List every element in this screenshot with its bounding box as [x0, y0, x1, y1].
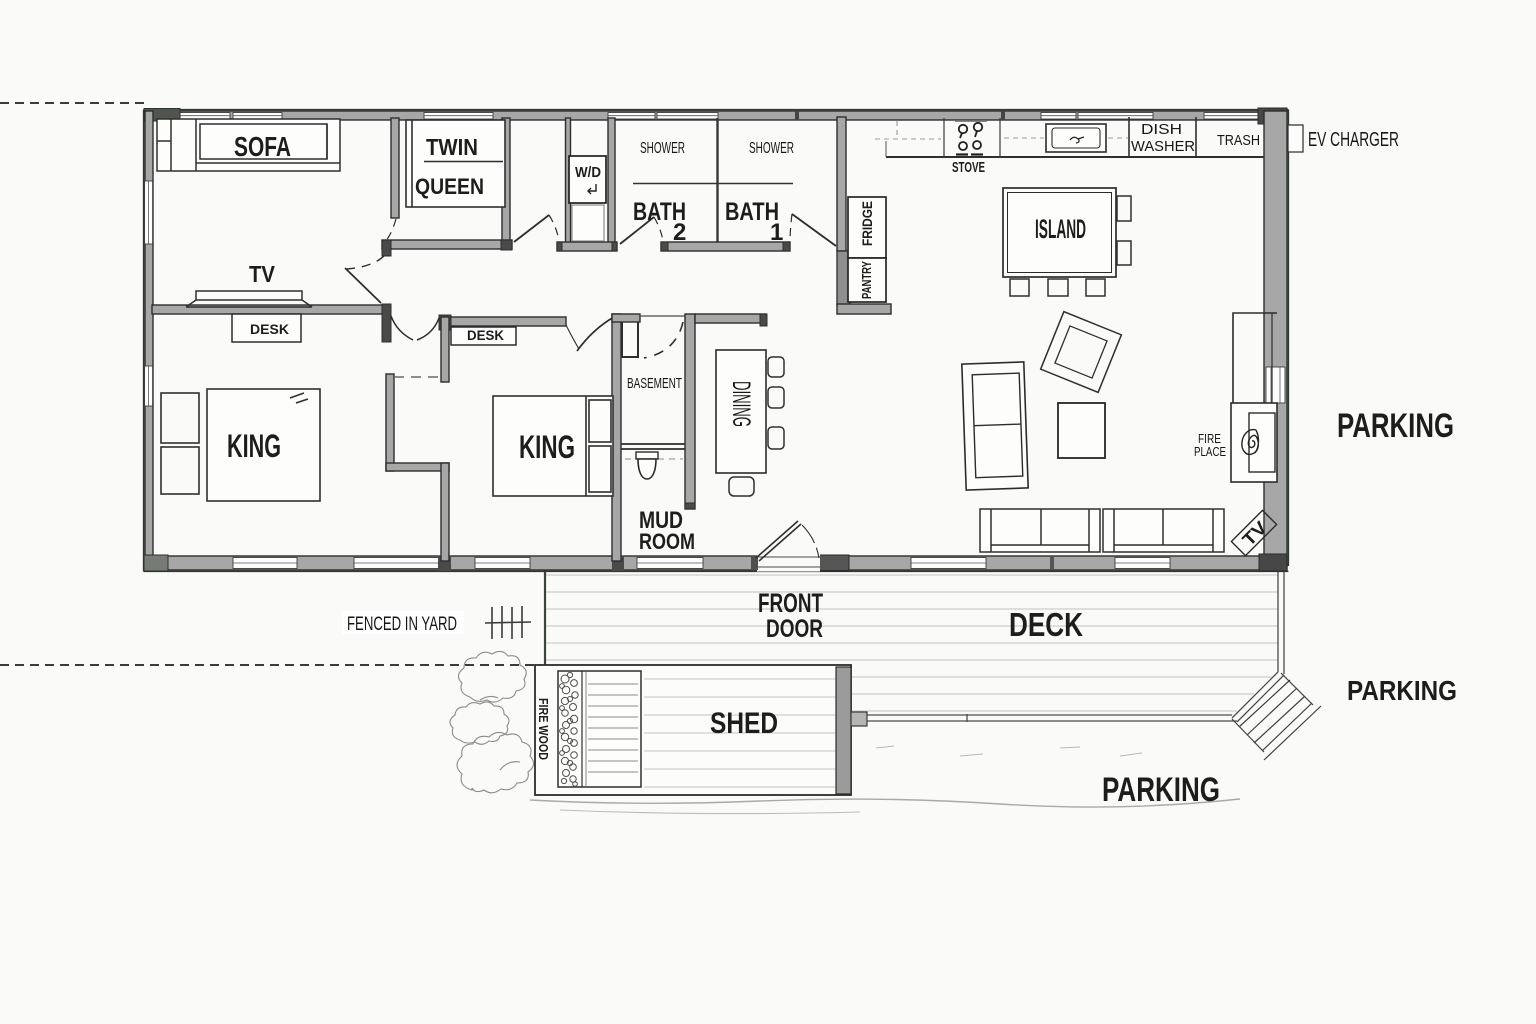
svg-text:W/D: W/D: [575, 164, 601, 181]
svg-text:FRONT: FRONT: [758, 588, 823, 618]
svg-text:FIRE WOOD: FIRE WOOD: [536, 698, 551, 760]
svg-text:EV CHARGER: EV CHARGER: [1308, 129, 1399, 151]
svg-text:TWIN: TWIN: [426, 134, 478, 160]
svg-text:KING: KING: [519, 429, 575, 465]
svg-text:1: 1: [770, 219, 783, 246]
svg-text:ISLAND: ISLAND: [1035, 214, 1086, 244]
svg-text:DECK: DECK: [1009, 606, 1083, 643]
svg-text:FENCED IN YARD: FENCED IN YARD: [347, 614, 457, 635]
svg-text:BASEMENT: BASEMENT: [627, 375, 682, 392]
svg-text:SHOWER: SHOWER: [640, 140, 685, 157]
svg-text:TV: TV: [249, 261, 276, 287]
svg-text:TRASH: TRASH: [1217, 132, 1260, 149]
svg-text:DINING: DINING: [727, 381, 755, 427]
svg-text:DISH: DISH: [1141, 121, 1182, 138]
svg-text:2: 2: [673, 219, 686, 246]
svg-text:SHOWER: SHOWER: [749, 140, 794, 157]
svg-text:ROOM: ROOM: [639, 529, 695, 554]
svg-text:WASHER: WASHER: [1131, 138, 1195, 155]
svg-text:KING: KING: [227, 428, 281, 464]
svg-text:FRIDGE: FRIDGE: [859, 201, 875, 246]
svg-text:DESK: DESK: [467, 328, 504, 343]
svg-text:PLACE: PLACE: [1194, 444, 1226, 459]
svg-text:PARKING: PARKING: [1102, 771, 1220, 809]
svg-text:SHED: SHED: [710, 707, 778, 740]
svg-text:QUEEN: QUEEN: [415, 174, 484, 199]
svg-text:SOFA: SOFA: [234, 131, 291, 162]
svg-text:PARKING: PARKING: [1337, 407, 1454, 445]
svg-text:DOOR: DOOR: [766, 615, 823, 643]
svg-text:STOVE: STOVE: [952, 159, 985, 176]
svg-text:PARKING: PARKING: [1347, 675, 1457, 706]
svg-text:PANTRY: PANTRY: [860, 260, 874, 299]
svg-text:DESK: DESK: [250, 322, 289, 337]
